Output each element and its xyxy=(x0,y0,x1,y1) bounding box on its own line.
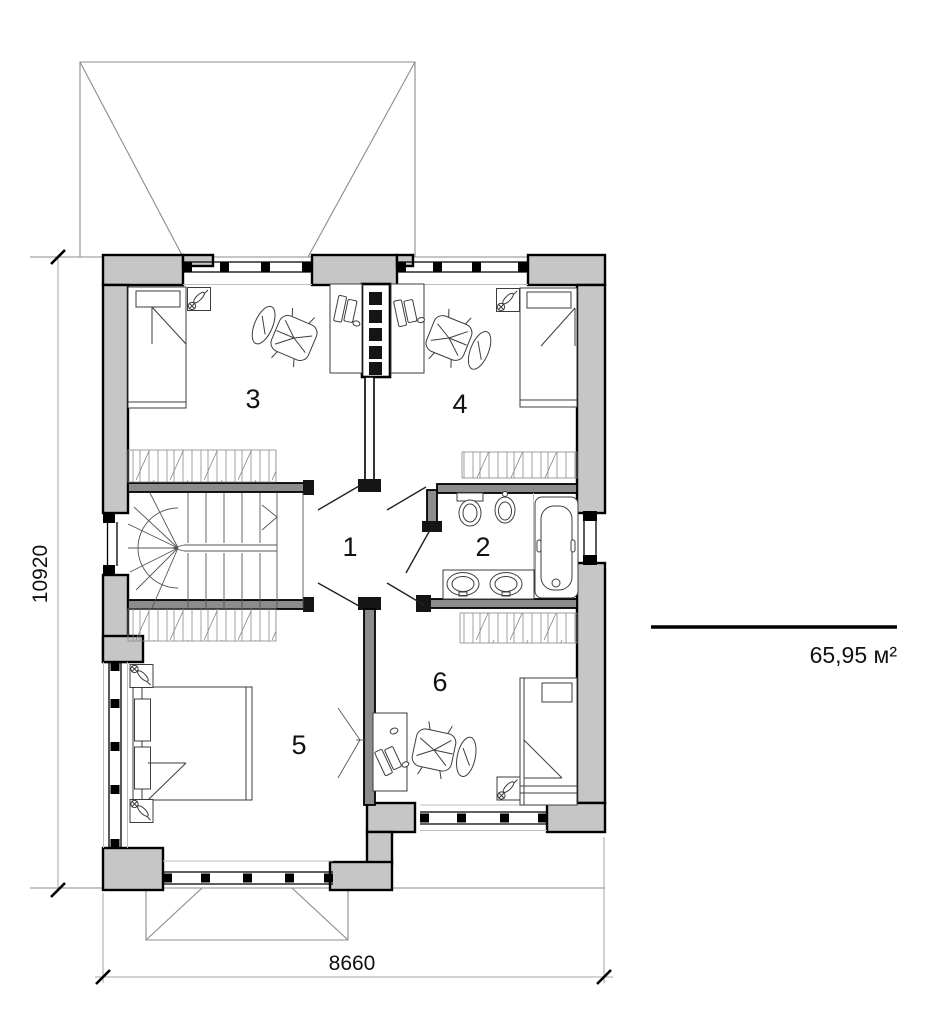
window-icon-bathroom-right xyxy=(583,511,597,565)
room-label-4: 4 xyxy=(452,389,467,419)
room-label-5: 5 xyxy=(291,730,306,760)
plant-icon-room5-top xyxy=(130,665,153,688)
chimney-shaft-icon xyxy=(362,284,390,377)
single-bed-icon-room6 xyxy=(520,678,577,805)
window-icon-bedroom5-bottom xyxy=(163,872,333,884)
window-icon-bedroom5-left xyxy=(109,662,121,848)
bidet-icon xyxy=(495,492,515,524)
double-bed-icon-room5 xyxy=(133,687,252,800)
dimension-vertical: 10920 xyxy=(29,250,65,897)
floor-plan-drawing: 1 2 3 4 5 6 10920 8660 65,95 м² xyxy=(0,0,941,1024)
single-bed-icon-room4 xyxy=(520,288,577,407)
area-label: 65,95 м² xyxy=(810,642,898,668)
area-annotation: 65,95 м² xyxy=(651,627,897,668)
floor-plan-page: 1 2 3 4 5 6 10920 8660 65,95 м² xyxy=(0,0,941,1024)
office-chair-icon-room4 xyxy=(420,305,498,378)
window-icon-top-right xyxy=(397,262,528,272)
wall-marker-icon xyxy=(338,708,366,778)
desk-icon-room3 xyxy=(330,284,365,373)
single-bed-icon-room3 xyxy=(128,287,186,408)
toilet-icon xyxy=(457,493,483,526)
room-label-3: 3 xyxy=(245,384,260,414)
dimension-label-vertical: 10920 xyxy=(29,545,52,603)
office-chair-icon-room3 xyxy=(245,297,323,371)
plant-icon-room5-bottom xyxy=(130,800,153,823)
plant-icon-room6 xyxy=(497,777,520,800)
dimension-horizontal: 8660 xyxy=(95,837,613,984)
stairs-icon xyxy=(128,493,303,608)
window-icon-stairs-left xyxy=(103,513,117,575)
plant-icon-room3 xyxy=(188,288,211,311)
room-label-1: 1 xyxy=(342,532,357,562)
plant-icon-room4 xyxy=(497,289,520,312)
dimension-label-horizontal: 8660 xyxy=(329,952,376,975)
double-sink-vanity-icon xyxy=(443,570,534,599)
room-label-2: 2 xyxy=(475,532,490,562)
window-icon-bedroom6-bottom xyxy=(420,812,547,824)
office-chair-icon-room6 xyxy=(409,719,481,785)
roof-outline-bottom-icon xyxy=(30,888,605,940)
desk-icon-room6 xyxy=(373,713,410,791)
room-label-6: 6 xyxy=(432,667,447,697)
desk-icon-room4 xyxy=(391,284,425,373)
bathtub-icon xyxy=(535,497,578,598)
roof-outline-top-icon xyxy=(30,62,605,257)
